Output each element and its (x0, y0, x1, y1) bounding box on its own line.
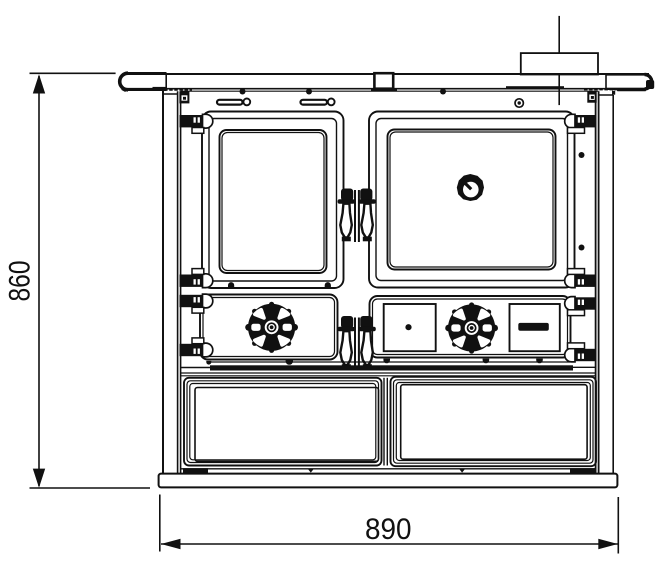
svg-text:890: 890 (365, 513, 412, 546)
svg-text:860: 860 (4, 261, 37, 302)
